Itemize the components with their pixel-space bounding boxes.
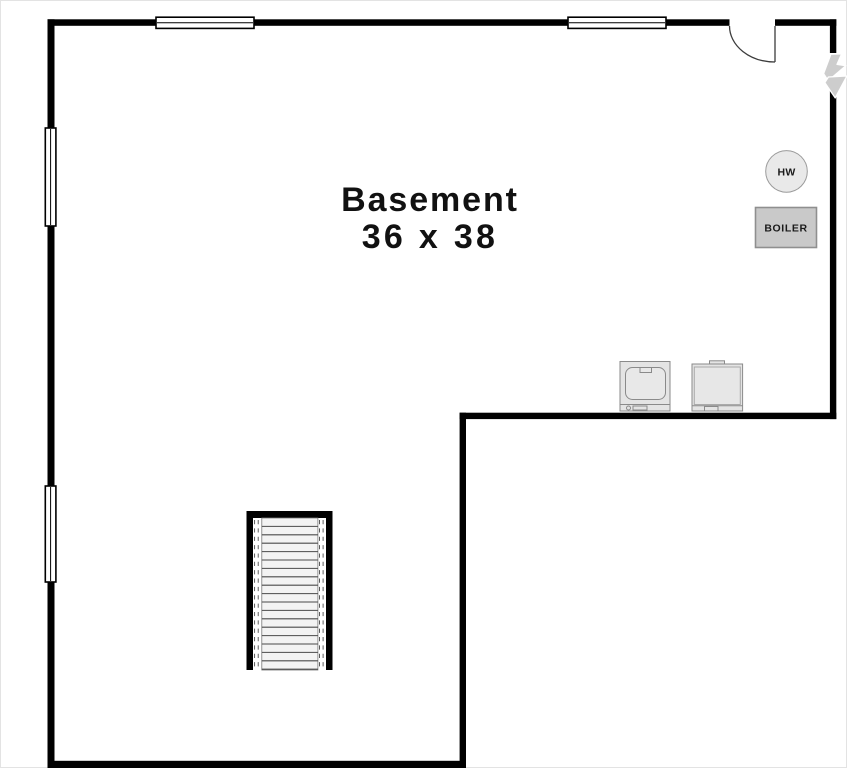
- svg-text:BOILER: BOILER: [764, 223, 807, 235]
- svg-text:36 x 38: 36 x 38: [362, 218, 499, 256]
- svg-text:HW: HW: [778, 167, 796, 179]
- svg-text:Basement: Basement: [341, 181, 519, 219]
